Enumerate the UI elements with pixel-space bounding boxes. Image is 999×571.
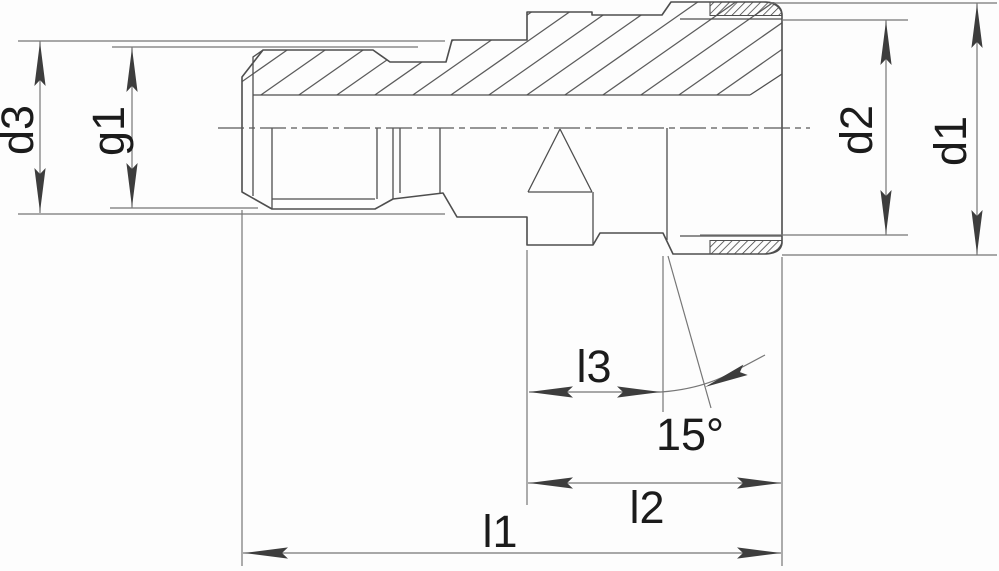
thread-hatch-band-bottom — [710, 241, 782, 255]
label-l2: l2 — [629, 482, 664, 533]
angle-arc — [661, 355, 765, 392]
thread-hatch-band-top — [710, 2, 782, 16]
cone-angle-line — [668, 256, 711, 408]
label-d3: d3 — [0, 105, 43, 155]
upper-profile — [242, 2, 782, 128]
label-angle: 15° — [656, 409, 724, 460]
label-d2: d2 — [831, 105, 882, 155]
technical-drawing-canvas: d3 g1 d2 d1 l3 15° l2 — [0, 0, 999, 571]
label-d1: d1 — [925, 116, 976, 166]
dimension-l3: l3 — [527, 250, 663, 505]
label-l3: l3 — [576, 341, 611, 392]
dimension-l1: l1 — [242, 210, 781, 566]
label-g1: g1 — [83, 106, 134, 156]
label-l1: l1 — [482, 506, 517, 557]
fitting-section-drawing: d3 g1 d2 d1 l3 15° l2 — [0, 0, 999, 571]
hex-and-cone-lines — [528, 128, 667, 245]
dimension-angle-15deg: 15° — [656, 256, 765, 460]
